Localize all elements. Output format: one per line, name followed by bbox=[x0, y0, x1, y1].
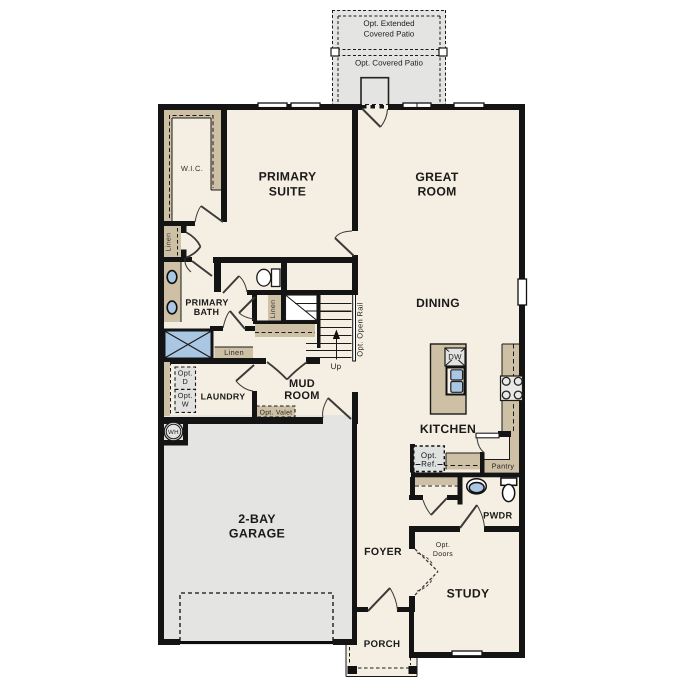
svg-text:Ref.: Ref. bbox=[421, 460, 437, 469]
svg-text:Opt.: Opt. bbox=[436, 542, 450, 549]
svg-text:Opt. Valet: Opt. Valet bbox=[260, 410, 293, 417]
svg-text:Linen: Linen bbox=[269, 300, 277, 319]
svg-text:PRIMARY: PRIMARY bbox=[185, 298, 228, 308]
svg-text:GREAT: GREAT bbox=[415, 170, 459, 184]
svg-text:STUDY: STUDY bbox=[447, 587, 490, 601]
svg-text:ROOM: ROOM bbox=[417, 185, 456, 199]
svg-text:W.I.C.: W.I.C. bbox=[181, 164, 203, 173]
svg-text:Up: Up bbox=[331, 362, 342, 371]
svg-text:W: W bbox=[182, 400, 189, 409]
svg-text:LAUNDRY: LAUNDRY bbox=[201, 391, 246, 401]
svg-text:Opt. Open Rail: Opt. Open Rail bbox=[355, 302, 364, 356]
svg-text:PRIMARY: PRIMARY bbox=[259, 170, 317, 184]
svg-text:WH: WH bbox=[168, 429, 179, 436]
svg-text:Covered Patio: Covered Patio bbox=[364, 30, 415, 39]
svg-text:D: D bbox=[183, 377, 189, 386]
svg-text:MUD: MUD bbox=[289, 378, 315, 390]
svg-text:2-BAY: 2-BAY bbox=[238, 512, 276, 526]
svg-text:Opt.: Opt. bbox=[178, 391, 193, 400]
svg-text:Pantry: Pantry bbox=[492, 462, 515, 471]
svg-text:DW: DW bbox=[448, 353, 462, 362]
svg-text:PORCH: PORCH bbox=[364, 639, 401, 650]
svg-text:Linen: Linen bbox=[165, 233, 173, 252]
svg-text:Opt. Extended: Opt. Extended bbox=[363, 19, 414, 28]
svg-text:SUITE: SUITE bbox=[269, 185, 306, 199]
svg-text:GARAGE: GARAGE bbox=[229, 527, 285, 541]
svg-text:Opt. Covered Patio: Opt. Covered Patio bbox=[355, 59, 424, 68]
svg-text:PWDR: PWDR bbox=[483, 511, 512, 521]
svg-text:DINING: DINING bbox=[416, 296, 460, 310]
svg-text:KITCHEN: KITCHEN bbox=[420, 422, 476, 436]
svg-text:Linen: Linen bbox=[224, 348, 244, 357]
svg-text:ROOM: ROOM bbox=[284, 390, 319, 402]
svg-text:Doors: Doors bbox=[433, 551, 453, 558]
svg-text:FOYER: FOYER bbox=[364, 546, 402, 558]
svg-text:BATH: BATH bbox=[194, 307, 220, 317]
